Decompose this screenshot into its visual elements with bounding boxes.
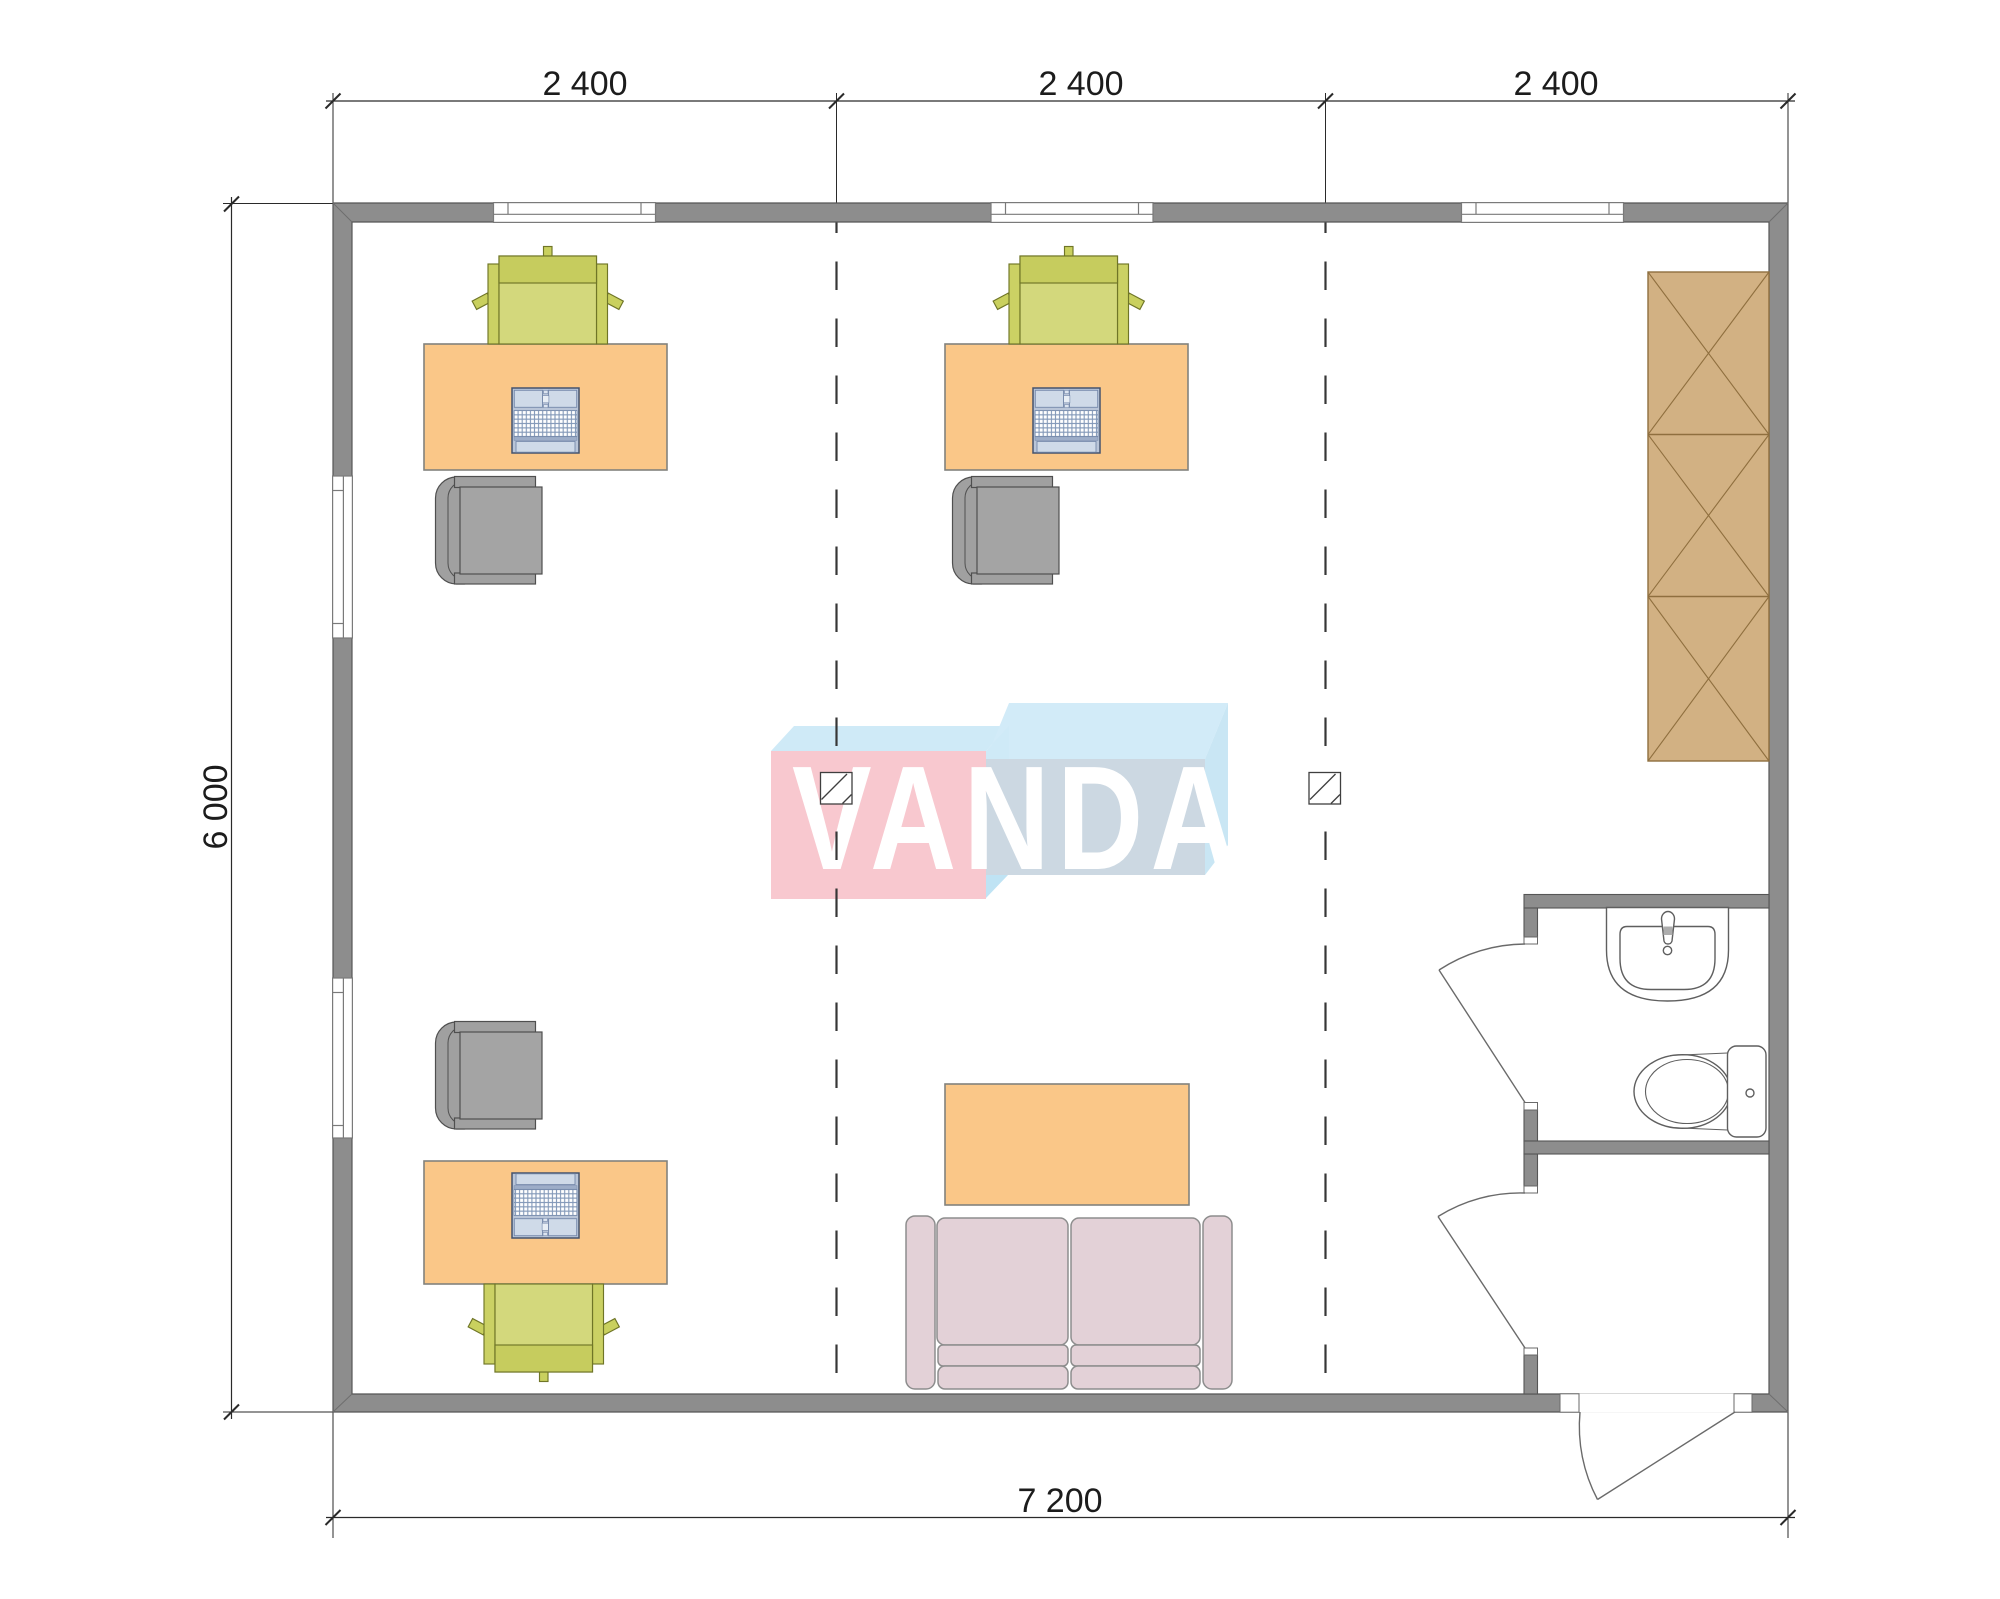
svg-text:2 400: 2 400 <box>1513 65 1598 103</box>
svg-text:6 000: 6 000 <box>197 764 235 849</box>
svg-text:2 400: 2 400 <box>542 65 627 103</box>
svg-text:7 200: 7 200 <box>1017 1482 1102 1520</box>
svg-text:VANDA: VANDA <box>792 736 1244 901</box>
svg-text:2 400: 2 400 <box>1038 65 1123 103</box>
